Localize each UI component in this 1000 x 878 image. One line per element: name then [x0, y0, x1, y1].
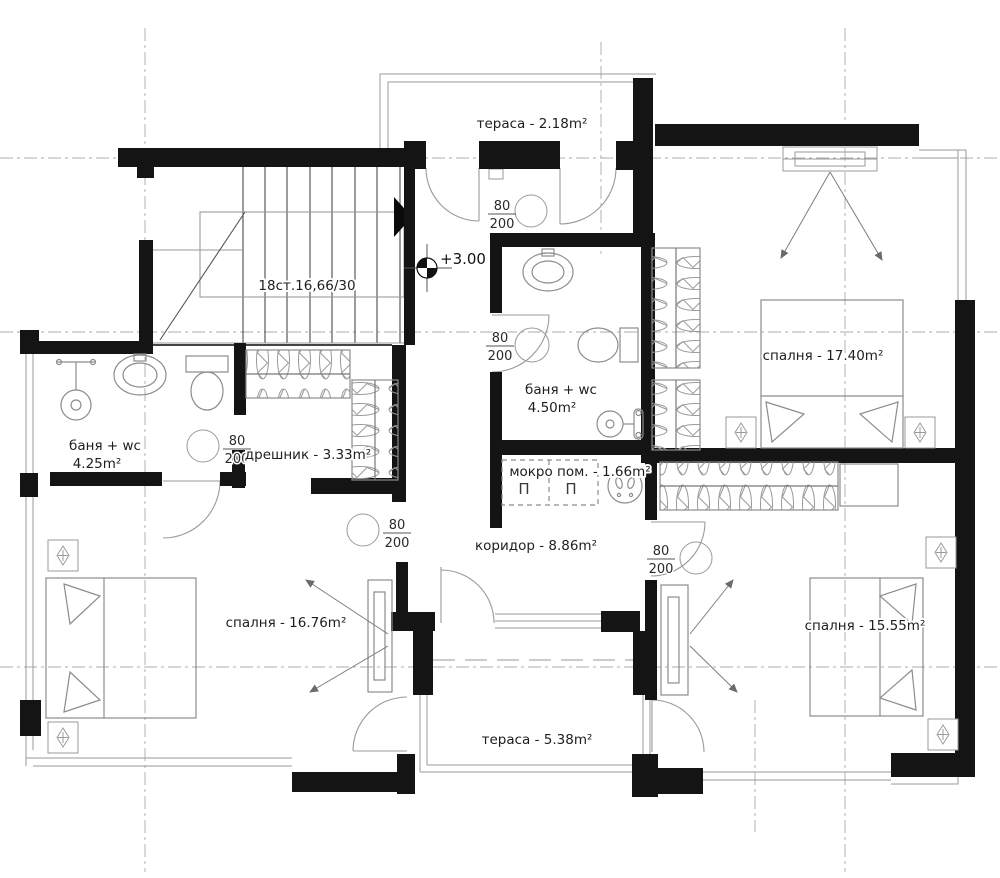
door-size-marker: 80 200 — [488, 195, 547, 232]
desk-bedroom-left — [368, 580, 392, 692]
door-bathroom-left — [163, 481, 220, 538]
room-label-wet-room: мокро пом. - 1.66m² — [509, 464, 650, 480]
room-label-bathroom-left: баня + wc — [69, 438, 141, 454]
wardrobe-closet-right — [352, 380, 398, 480]
bed-bedroom-bottom-right — [810, 578, 923, 716]
toilet-icon — [186, 356, 228, 410]
appliance-symbol: П — [518, 480, 529, 498]
walls-layer — [20, 78, 975, 797]
nightstand-lamp — [48, 540, 78, 571]
room-label-bathroom-left-area: 4.25m² — [73, 456, 122, 472]
toilet-icon — [578, 328, 638, 362]
wardrobe-bedroom-bottom-right — [660, 462, 898, 510]
floor-plan-drawing: +3.00 80 200 80 200 80 200 80 200 80 200 — [0, 0, 1000, 878]
room-label-terrace-top: тераса - 2.18m² — [477, 116, 588, 132]
svg-text:80: 80 — [494, 199, 511, 214]
nightstand-lamp — [48, 722, 78, 753]
wardrobe-closet-top — [246, 350, 350, 398]
nightstand-lamp — [726, 417, 756, 448]
sink-icon — [114, 354, 166, 395]
bed-bedroom-right — [761, 300, 903, 448]
room-label-terrace-bottom: тераса - 5.38m² — [482, 732, 593, 748]
door-corridor-terrace — [441, 567, 494, 623]
elevation-marker: +3.00 — [404, 244, 486, 292]
svg-text:80: 80 — [653, 544, 670, 559]
svg-text:200: 200 — [649, 562, 674, 577]
room-label-bathroom-center-area: 4.50m² — [528, 400, 577, 416]
svg-text:80: 80 — [492, 331, 509, 346]
window-bedroom-right — [783, 147, 877, 171]
door-bedroom-left-terrace — [353, 697, 407, 751]
door-terrace-top-left — [426, 168, 479, 221]
room-label-closet: дрешник - 3.33m² — [245, 447, 371, 463]
appliance-symbol: П — [565, 480, 576, 498]
terrace-bottom-parapet — [420, 660, 650, 772]
door-bedroom-bottom-right-terrace — [652, 700, 704, 752]
svg-text:80: 80 — [389, 518, 406, 533]
stairs-label: 18ст.16,66/30 — [258, 278, 355, 294]
nightstand-lamp — [926, 537, 956, 568]
svg-text:200: 200 — [385, 536, 410, 551]
terrace-top-parapet — [380, 74, 656, 150]
svg-text:80: 80 — [229, 434, 246, 449]
nightstand-lamp — [905, 417, 935, 448]
elevation-value: +3.00 — [440, 250, 486, 268]
svg-text:200: 200 — [488, 349, 513, 364]
room-label-bedroom-bottom-right: спалня - 15.55m² — [805, 618, 926, 634]
floor-plan-canvas: +3.00 80 200 80 200 80 200 80 200 80 200 — [0, 0, 1000, 878]
bed-bedroom-left — [46, 578, 196, 718]
door-size-marker: 80 200 — [647, 542, 712, 577]
nightstand-lamp — [928, 719, 958, 750]
shower-icon — [597, 409, 643, 439]
door-size-marker: 80 200 — [347, 514, 411, 551]
room-label-corridor: коридор - 8.86m² — [475, 538, 597, 554]
wardrobe-bedroom-right — [652, 248, 700, 450]
door-terrace-top-right — [560, 168, 616, 224]
sink-icon — [523, 249, 573, 291]
room-label-bathroom-center: баня + wc — [525, 382, 597, 398]
svg-text:200: 200 — [490, 217, 515, 232]
desk-bedroom-bottom-right — [661, 585, 688, 695]
door-size-marker: 80 200 — [187, 430, 251, 467]
room-label-bedroom-right: спалня - 17.40m² — [763, 348, 884, 364]
room-label-bedroom-left: спалня - 16.76m² — [226, 615, 347, 631]
staircase — [153, 167, 412, 343]
shower-icon — [57, 360, 96, 421]
